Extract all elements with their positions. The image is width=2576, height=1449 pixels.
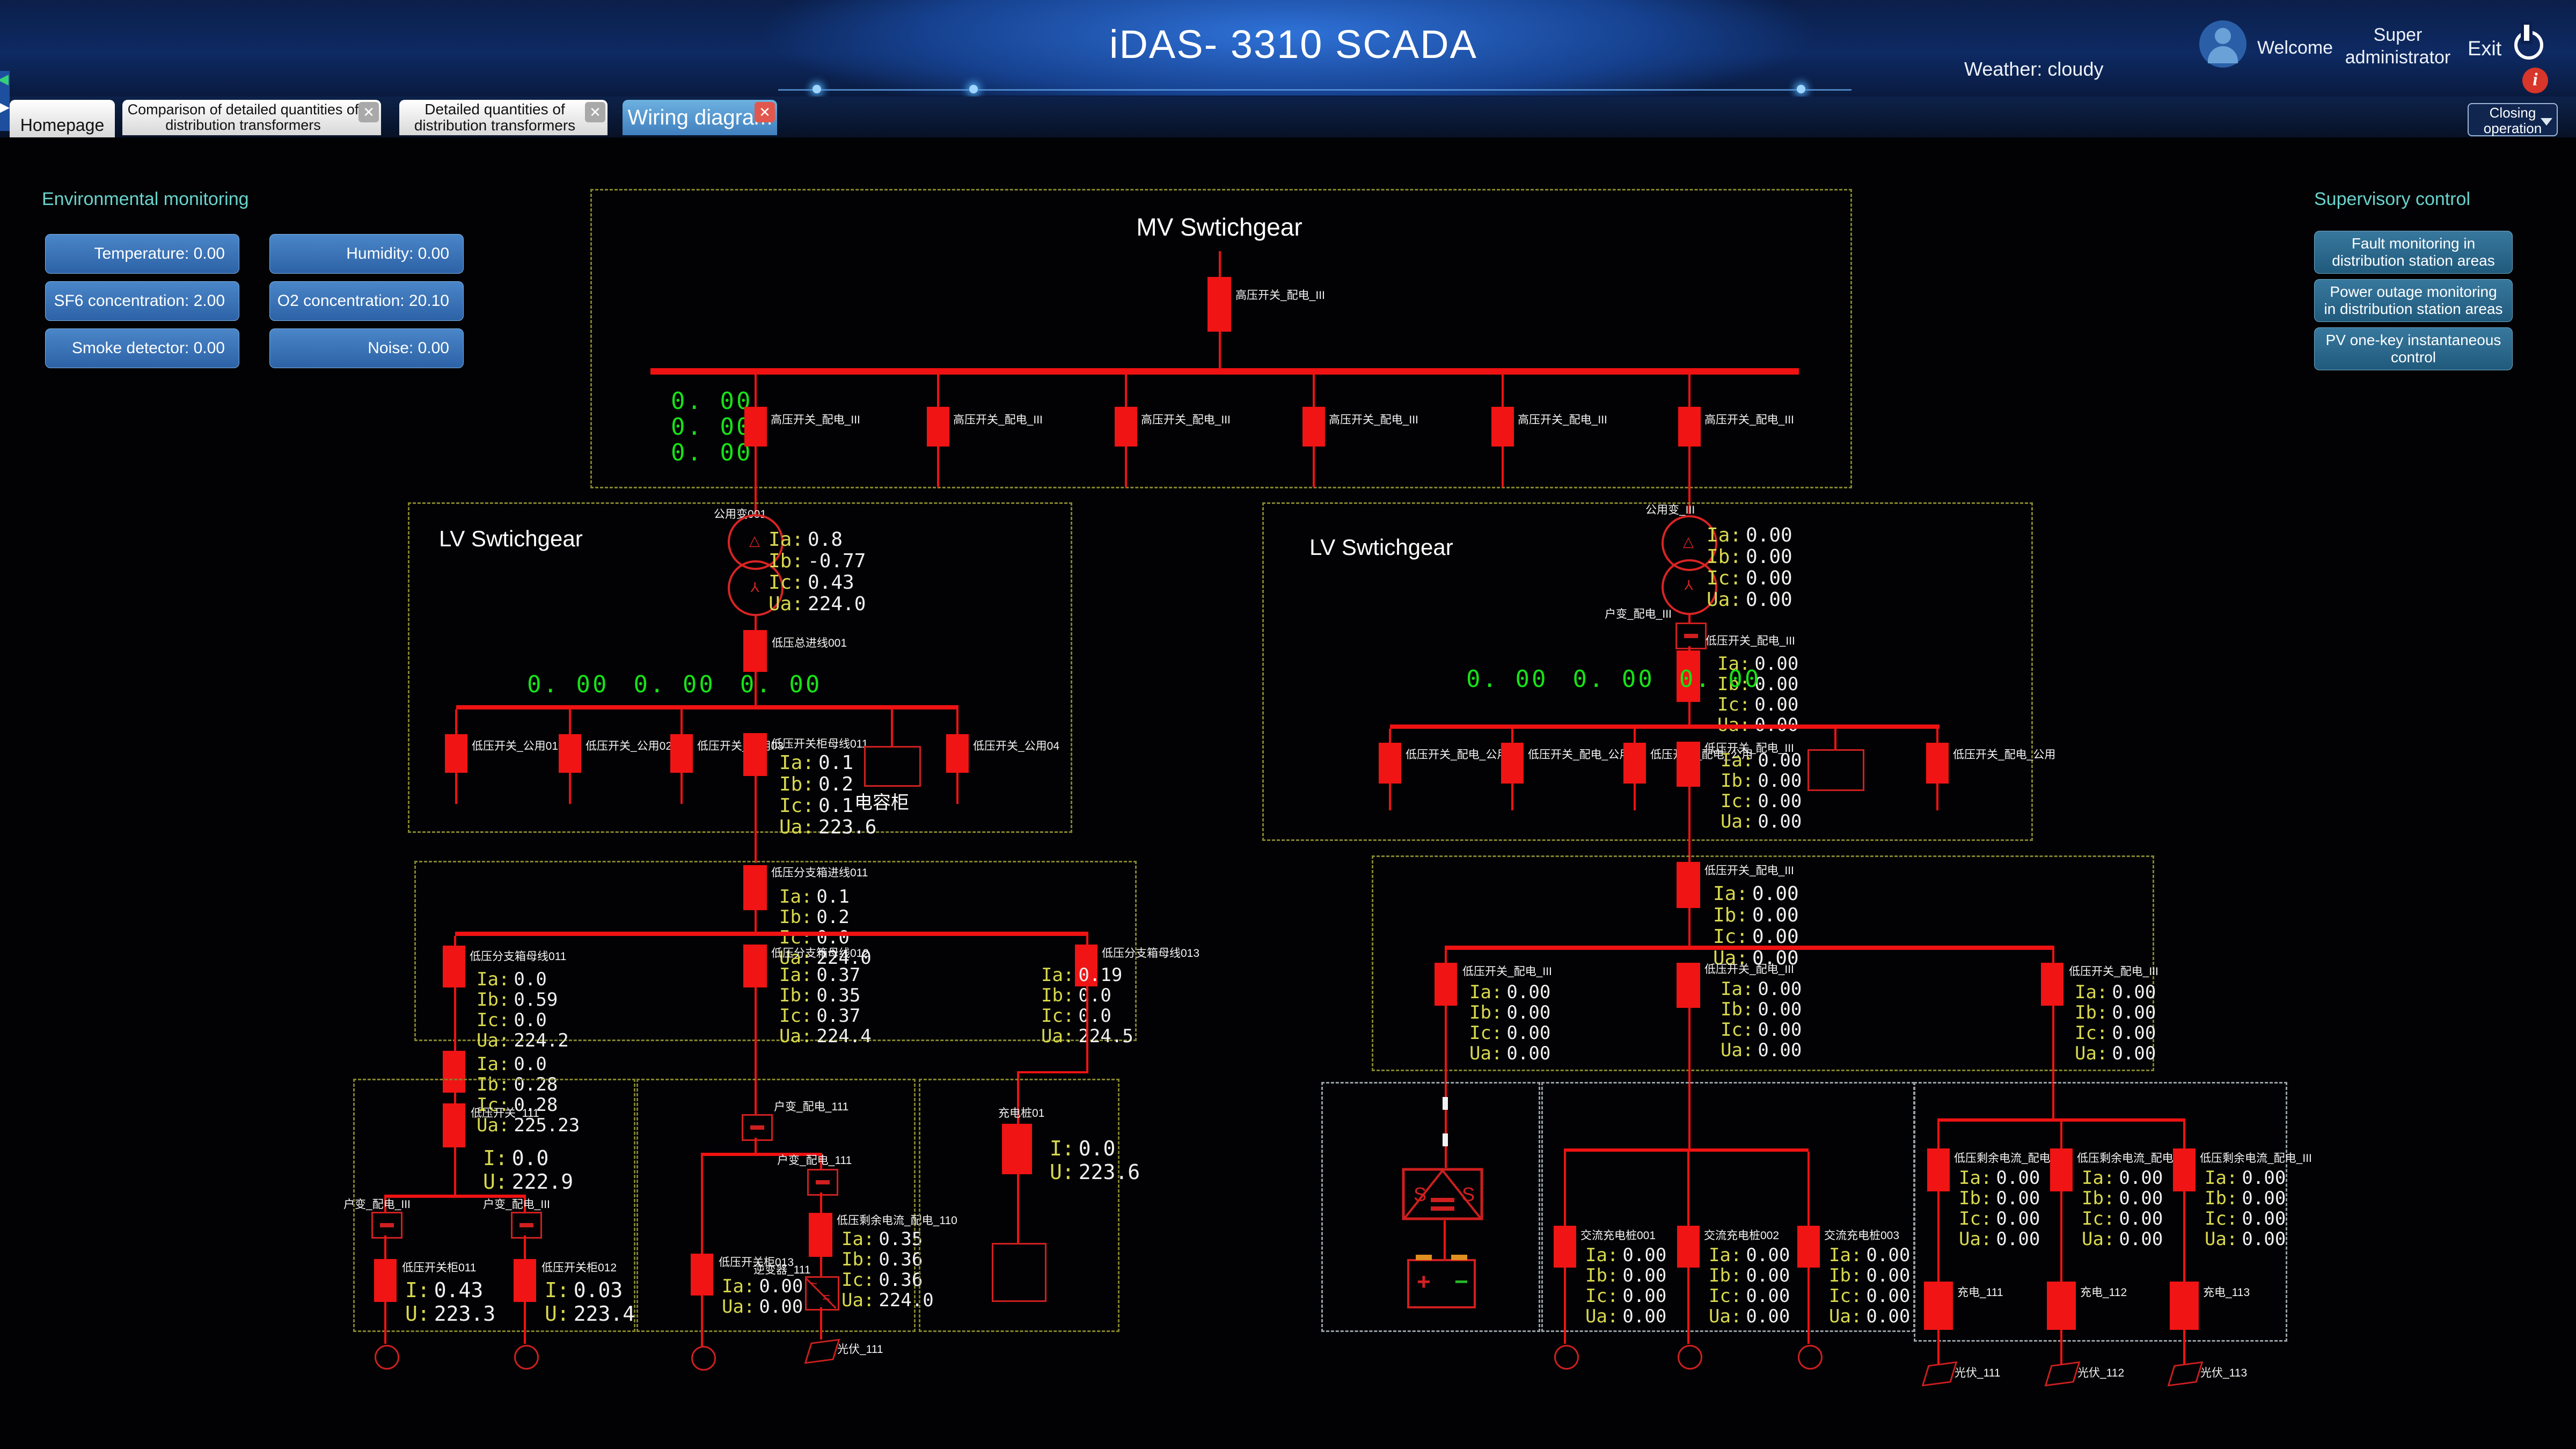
device-label: 低压开关_配电_III bbox=[1706, 635, 1795, 647]
chevron-left-icon[interactable]: ◀ bbox=[0, 71, 9, 87]
wire bbox=[1937, 1122, 1940, 1150]
device-label: 低压开关_公用02 bbox=[586, 741, 672, 752]
lv-main-breaker[interactable] bbox=[743, 630, 767, 672]
busbar bbox=[384, 1195, 526, 1198]
tab-bar bbox=[0, 97, 2576, 137]
device-label: 低压开关_公用01 bbox=[472, 741, 558, 752]
device-label: 充电_111 bbox=[1957, 1287, 2003, 1299]
mv-feeder-breaker[interactable] bbox=[927, 407, 949, 447]
fault-monitoring-button[interactable]: Fault monitoring in distribution station… bbox=[2314, 231, 2513, 274]
wire bbox=[1687, 1152, 1689, 1227]
wire bbox=[937, 375, 939, 408]
device-label: 低压开关柜012 bbox=[541, 1262, 617, 1274]
device-label: 低压开关柜母线011 bbox=[771, 738, 868, 750]
device-label: 交流充电桩002 bbox=[1704, 1230, 1779, 1242]
lv-right-title: LV Swtichgear bbox=[1309, 535, 1453, 560]
close-icon[interactable]: ✕ bbox=[358, 102, 379, 122]
device-label: 低压剩余电流_配电_III bbox=[2200, 1153, 2312, 1165]
tab-detailed-quantities[interactable]: Detailed quantities of distribution tran… bbox=[399, 100, 608, 135]
device-label: 低压分支箱进线011 bbox=[771, 867, 868, 879]
branch-breaker[interactable] bbox=[443, 1103, 465, 1147]
readings: Ia:0.00Ib:0.00Ic:0.00Ua:0.00 bbox=[1713, 883, 1799, 969]
wire bbox=[755, 776, 757, 863]
wire bbox=[1125, 375, 1127, 408]
readings: Ia:0.00Ib:0.00Ic:0.00Ua:0.00 bbox=[1721, 750, 1802, 832]
weather-text: Weather: cloudy bbox=[1964, 58, 2103, 80]
svg-text:S: S bbox=[1414, 1183, 1426, 1205]
wire bbox=[1936, 729, 1938, 744]
branch-breaker[interactable] bbox=[743, 865, 767, 910]
pv-breaker[interactable] bbox=[2173, 1148, 2196, 1191]
pv-panel-icon bbox=[2168, 1362, 2204, 1387]
pv-breaker[interactable] bbox=[2050, 1148, 2073, 1191]
mv-green-values: 0. 00 0. 00 0. 00 bbox=[671, 389, 752, 466]
wire bbox=[1807, 1268, 1810, 1344]
charger-breaker[interactable] bbox=[1677, 1226, 1700, 1268]
device-label: 低压开关_111 bbox=[471, 1108, 539, 1119]
mv-title: MV Swtichgear bbox=[1107, 213, 1332, 241]
svg-text:S: S bbox=[1462, 1183, 1475, 1205]
readings: Ia:0.00Ib:0.00Ic:0.00Ua:0.00 bbox=[1585, 1245, 1666, 1327]
readings: Ia:0.00Ib:0.00Ic:0.00Ua:0.00 bbox=[1829, 1245, 1910, 1327]
green-value: 0. 00 bbox=[740, 672, 822, 698]
inverter-glyph: ~ bbox=[809, 1276, 817, 1290]
wire bbox=[891, 709, 893, 747]
wire bbox=[1313, 375, 1315, 408]
device-label: 低压分支箱母线012 bbox=[771, 948, 869, 960]
wire bbox=[1688, 702, 1690, 726]
avatar-body-icon bbox=[2208, 46, 2238, 63]
wire bbox=[755, 1138, 757, 1153]
wire bbox=[2052, 950, 2054, 964]
wire bbox=[569, 709, 571, 735]
load-circle bbox=[514, 1345, 539, 1370]
device-label: 低压开关_配电_公用 bbox=[1953, 749, 2055, 761]
device-label: 交流充电桩003 bbox=[1824, 1230, 1899, 1242]
lv-feeder-breaker[interactable] bbox=[1623, 743, 1646, 784]
device-label: 高压开关_配电_III bbox=[1141, 414, 1231, 426]
readings: Ia:0.8Ib:-0.77Ic:0.43Ua:224.0 bbox=[769, 529, 866, 615]
wire bbox=[384, 1235, 386, 1260]
sf6-button[interactable]: SF6 concentration: 2.00 bbox=[45, 281, 239, 321]
wire bbox=[1502, 375, 1504, 408]
wire bbox=[1125, 445, 1127, 487]
closing-operation-button[interactable]: Closing operation bbox=[2468, 103, 2558, 136]
readings: Ia:0.00Ua:0.00 bbox=[722, 1276, 803, 1317]
charger-breaker[interactable] bbox=[1002, 1124, 1032, 1174]
sidebar-collapse-strip[interactable]: ◀ ▶ bbox=[0, 71, 10, 131]
tab-label: Homepage bbox=[20, 115, 105, 135]
wire bbox=[454, 936, 456, 947]
outage-monitoring-button[interactable]: Power outage monitoring in distribution … bbox=[2314, 279, 2513, 322]
wire bbox=[680, 709, 683, 735]
wire bbox=[755, 910, 757, 933]
charger-breaker[interactable] bbox=[1554, 1226, 1576, 1268]
device-label: 光伏_113 bbox=[2200, 1367, 2247, 1379]
pv-onekey-button[interactable]: PV one-key instantaneous control bbox=[2314, 327, 2513, 370]
header: iDAS- 3310 SCADA Weather: cloudy Welcome… bbox=[0, 0, 2576, 97]
readings: Ia:0.00Ib:0.00Ic:0.00Ua:0.00 bbox=[2205, 1168, 2286, 1249]
green-value: 0. 00 bbox=[671, 440, 752, 466]
green-value: 0. 00 bbox=[671, 414, 752, 440]
chevron-down-icon bbox=[2541, 118, 2552, 126]
mid-left-busbar bbox=[455, 932, 1088, 936]
branch-breaker[interactable] bbox=[1677, 963, 1700, 1008]
device-label: 户变_配电_III bbox=[483, 1199, 550, 1211]
device-label: 低压开关_配电_公用 bbox=[1406, 749, 1508, 761]
branch-breaker[interactable] bbox=[2041, 963, 2063, 1006]
mv-feeder-breaker[interactable] bbox=[744, 407, 767, 447]
charger-breaker[interactable] bbox=[1797, 1226, 1820, 1268]
load-circle bbox=[1554, 1345, 1579, 1370]
device-label: 光伏_112 bbox=[2077, 1367, 2124, 1379]
disconnect-switch-icon[interactable] bbox=[371, 1212, 402, 1239]
device-label: 充电_113 bbox=[2203, 1287, 2250, 1299]
wire bbox=[701, 1296, 703, 1347]
line-tick bbox=[1443, 1133, 1448, 1146]
pv-charger-breaker[interactable] bbox=[1924, 1282, 1953, 1330]
wire bbox=[524, 1235, 526, 1260]
mv-feeder-breaker[interactable] bbox=[1678, 407, 1701, 447]
device-label: 高压开关_配电_III bbox=[1329, 414, 1418, 426]
lv-feeder-breaker[interactable] bbox=[670, 734, 693, 773]
wire bbox=[1634, 784, 1636, 810]
wire bbox=[1936, 784, 1938, 810]
device-label: 充电桩01 bbox=[998, 1108, 1044, 1119]
disconnect-switch-icon[interactable] bbox=[807, 1169, 838, 1196]
glow-dot bbox=[1797, 85, 1805, 93]
device-label: 户变_配电_111 bbox=[777, 1155, 852, 1167]
device-label: 低压开关_配电_III bbox=[1704, 865, 1794, 877]
scada-screen: iDAS- 3310 SCADA Weather: cloudy Welcome… bbox=[0, 0, 2576, 1449]
branch-breaker[interactable] bbox=[743, 945, 767, 987]
lv-right-busbar bbox=[1390, 724, 1940, 729]
wire bbox=[937, 445, 939, 487]
mid-right-busbar bbox=[1445, 946, 2054, 950]
device-label: 高压开关_配电_III bbox=[1518, 414, 1607, 426]
wire bbox=[1511, 729, 1513, 744]
readings: Ia:0.00Ib:0.00Ic:0.00Ua:0.00 bbox=[1709, 1245, 1790, 1327]
wire bbox=[1444, 1220, 1446, 1259]
busbar bbox=[1564, 1148, 1809, 1152]
disconnect-switch-icon[interactable] bbox=[511, 1212, 542, 1239]
device-label: 低压分支箱母线013 bbox=[1102, 948, 1199, 960]
wire bbox=[454, 1147, 456, 1196]
lv-feeder-breaker[interactable] bbox=[445, 734, 467, 773]
battery-icon: + − bbox=[1407, 1259, 1476, 1308]
pv-charger-breaker[interactable] bbox=[2170, 1282, 2199, 1330]
mv-feeder-breaker[interactable] bbox=[1115, 407, 1137, 447]
device-label: 公用变_III bbox=[1645, 504, 1695, 516]
wire bbox=[2060, 1191, 2062, 1283]
wire bbox=[1688, 375, 1690, 408]
smoke-button[interactable]: Smoke detector: 0.00 bbox=[45, 328, 239, 368]
avatar-head-icon bbox=[2215, 28, 2231, 44]
mv-incoming-breaker[interactable] bbox=[1207, 277, 1231, 332]
page-title: iDAS- 3310 SCADA bbox=[966, 21, 1621, 67]
converter-icon: S S bbox=[1402, 1168, 1483, 1220]
lv-right-green-values: 0. 000. 000. 00 bbox=[1466, 667, 1761, 692]
wire bbox=[956, 709, 958, 735]
device-label: 光伏_111 bbox=[1955, 1367, 2001, 1379]
wire bbox=[1834, 729, 1836, 750]
wire bbox=[1688, 787, 1690, 863]
wire bbox=[1018, 1071, 1088, 1073]
capacitor-label: 电容柜 bbox=[854, 788, 909, 814]
tab-homepage[interactable]: Homepage bbox=[10, 100, 115, 137]
load-breaker[interactable] bbox=[809, 1213, 832, 1257]
device-label: 交流充电桩001 bbox=[1580, 1230, 1656, 1242]
wire bbox=[2060, 1330, 2062, 1364]
wire bbox=[1086, 986, 1088, 1073]
power-icon[interactable] bbox=[2509, 24, 2544, 58]
wire bbox=[2183, 1122, 2185, 1150]
noise-button[interactable]: Noise: 0.00 bbox=[269, 328, 464, 368]
wire bbox=[1687, 1268, 1689, 1344]
wire bbox=[1807, 1152, 1810, 1227]
disconnect-switch-icon[interactable] bbox=[1675, 623, 1707, 649]
readings: Ia:0.00Ib:0.00Ic:0.00Ua:0.00 bbox=[1959, 1168, 2040, 1249]
wire bbox=[1511, 784, 1513, 810]
branch-breaker[interactable] bbox=[1435, 963, 1457, 1006]
capacitor-box-icon bbox=[864, 746, 921, 787]
device-label: 户变_配电_III bbox=[1605, 609, 1672, 620]
chevron-right-icon[interactable]: ▶ bbox=[0, 99, 10, 115]
wire bbox=[1389, 729, 1391, 744]
wire bbox=[569, 773, 571, 804]
line-tick bbox=[1443, 1097, 1448, 1110]
user-name-line2: administrator bbox=[2344, 46, 2451, 69]
disconnect-switch-icon[interactable] bbox=[742, 1114, 773, 1141]
mv-feeder-breaker[interactable] bbox=[1302, 407, 1325, 447]
wire bbox=[454, 987, 456, 1052]
user-name-line1: Super bbox=[2344, 24, 2451, 46]
header-divider bbox=[778, 89, 1851, 91]
readings: Ia:0.00Ib:0.00Ic:0.00Ua:0.00 bbox=[1707, 525, 1792, 611]
tab-label: Comparison of detailed quantities of dis… bbox=[127, 102, 360, 133]
device-label: 逆变器_111 bbox=[753, 1264, 811, 1276]
lv-feeder-breaker[interactable] bbox=[1926, 743, 1949, 784]
branch-breaker[interactable] bbox=[443, 946, 465, 987]
close-icon[interactable]: ✕ bbox=[585, 102, 605, 122]
humidity-button[interactable]: Humidity: 0.00 bbox=[269, 234, 464, 274]
power-bar bbox=[2524, 25, 2529, 41]
glow-dot bbox=[813, 85, 821, 93]
readings: I:0.0U:223.6 bbox=[1050, 1137, 1140, 1184]
wire bbox=[1688, 908, 1690, 947]
wire bbox=[1937, 1330, 1940, 1364]
pv-panel-icon bbox=[804, 1339, 840, 1364]
device-label: 高压开关_配电_III bbox=[953, 414, 1043, 426]
wire bbox=[1634, 729, 1636, 744]
device-label: 高压开关_配电_III bbox=[1235, 290, 1325, 302]
green-value: 0. 00 bbox=[671, 389, 752, 414]
capacitor-box-icon bbox=[1807, 749, 1864, 791]
wire bbox=[1017, 1174, 1019, 1243]
lv-left-busbar bbox=[456, 705, 958, 709]
wire bbox=[755, 616, 757, 631]
load-circle bbox=[375, 1345, 399, 1370]
pv-panel-icon bbox=[2045, 1362, 2081, 1387]
glow-dot bbox=[969, 85, 978, 93]
branch-breaker[interactable] bbox=[1677, 862, 1700, 908]
green-value: 0. 00 bbox=[1572, 667, 1654, 692]
load-circle bbox=[1678, 1345, 1702, 1370]
device-label: 低压开关_配电_公用 bbox=[1528, 749, 1630, 761]
exit-button[interactable]: Exit bbox=[2468, 38, 2501, 61]
device-label: 低压开关_配电_III bbox=[2069, 966, 2158, 978]
green-value: 0. 00 bbox=[527, 672, 609, 698]
readings: Ia:0.00Ib:0.00Ic:0.00Ua:0.00 bbox=[1721, 979, 1802, 1060]
device-label: 户变_配电_111 bbox=[774, 1101, 848, 1113]
pv-panel-icon bbox=[1922, 1362, 1958, 1387]
wire bbox=[2183, 1191, 2185, 1283]
wire bbox=[956, 773, 958, 804]
load-box-icon bbox=[992, 1243, 1046, 1302]
wire bbox=[820, 1192, 822, 1213]
device-label: 低压开关_公用03 bbox=[697, 741, 784, 752]
info-icon[interactable]: i bbox=[2522, 68, 2548, 93]
temperature-button[interactable]: Temperature: 0.00 bbox=[45, 234, 239, 274]
wire bbox=[755, 375, 757, 408]
device-label: 低压分支箱母线011 bbox=[470, 951, 566, 963]
wire bbox=[701, 1156, 703, 1255]
load-circle bbox=[691, 1346, 716, 1371]
wire bbox=[820, 1257, 822, 1276]
lv-feeder-breaker[interactable] bbox=[1501, 743, 1524, 784]
lv-feeder-breaker[interactable] bbox=[559, 734, 581, 773]
green-value: 0. 00 bbox=[633, 672, 715, 698]
lv-center-breaker[interactable] bbox=[1677, 742, 1700, 787]
tab-comparison[interactable]: Comparison of detailed quantities of dis… bbox=[122, 100, 381, 135]
wire bbox=[455, 773, 457, 804]
wire bbox=[384, 1302, 386, 1344]
device-label: 充电_112 bbox=[2080, 1287, 2127, 1299]
close-icon[interactable]: ✕ bbox=[755, 102, 775, 122]
user-name: Super administrator bbox=[2344, 24, 2451, 69]
wire bbox=[455, 709, 457, 735]
device-label: 低压开关柜011 bbox=[402, 1262, 476, 1274]
tab-label: Wiring diagram bbox=[628, 106, 772, 130]
device-label: 低压剩余电流_配电_III bbox=[1954, 1153, 2066, 1165]
mv-feeder-breaker[interactable] bbox=[1491, 407, 1514, 447]
wire bbox=[1389, 784, 1391, 810]
closing-operation-label: Closing operation bbox=[2484, 105, 2542, 136]
device-label: 高压开关_配电_III bbox=[1704, 414, 1794, 426]
readings: Ia:0.37Ib:0.35Ic:0.37Ua:224.4 bbox=[779, 965, 872, 1046]
wire bbox=[1313, 445, 1315, 487]
wire bbox=[680, 773, 683, 804]
wire bbox=[1502, 445, 1504, 487]
tab-wiring-diagram[interactable]: Wiring diagram ✕ bbox=[623, 100, 777, 135]
load-breaker[interactable] bbox=[691, 1254, 713, 1296]
load-circle bbox=[1798, 1345, 1823, 1370]
wire bbox=[1445, 950, 1447, 964]
readings: Ia:0.00Ib:0.00Ic:0.00Ua:0.00 bbox=[2082, 1168, 2163, 1249]
device-label: 低压总进线001 bbox=[772, 638, 847, 649]
wire bbox=[2183, 1330, 2185, 1364]
mv-busbar bbox=[650, 368, 1799, 375]
lv-feeder-breaker[interactable] bbox=[946, 734, 969, 773]
avatar[interactable] bbox=[2199, 20, 2246, 68]
load-breaker[interactable] bbox=[374, 1259, 397, 1302]
device-label: 光伏_111 bbox=[837, 1344, 883, 1356]
device-label: 低压剩余电流_配电_III bbox=[2077, 1153, 2189, 1165]
o2-button[interactable]: O2 concentration: 20.10 bbox=[269, 281, 464, 321]
readings: Ia:0.00Ib:0.00Ic:0.00Ua:0.00 bbox=[2075, 982, 2156, 1064]
device-label: 高压开关_配电_III bbox=[771, 414, 860, 426]
readings: I:0.0U:222.9 bbox=[483, 1146, 573, 1194]
pv-breaker[interactable] bbox=[1927, 1148, 1950, 1191]
tab-label: Detailed quantities of distribution tran… bbox=[404, 101, 586, 134]
wire bbox=[1937, 1191, 1940, 1283]
lv-left-green-values: 0. 000. 000. 00 bbox=[527, 672, 822, 698]
supervisory-panel-title: Supervisory control bbox=[2314, 189, 2470, 210]
env-panel-title: Environmental monitoring bbox=[42, 189, 249, 210]
wire bbox=[524, 1302, 526, 1344]
wire bbox=[1564, 1268, 1566, 1344]
wire bbox=[2060, 1122, 2062, 1150]
lv-feeder-breaker[interactable] bbox=[1379, 743, 1401, 784]
device-label: 低压开关_配电_III bbox=[1704, 964, 1794, 976]
readings: Ia:0.00Ib:0.00Ic:0.00Ua:0.00 bbox=[1469, 982, 1550, 1064]
load-breaker[interactable] bbox=[514, 1259, 536, 1302]
wire bbox=[1564, 1152, 1566, 1227]
device-label: 户变_配电_III bbox=[343, 1199, 411, 1211]
green-value: 0. 00 bbox=[1466, 667, 1548, 692]
welcome-text: Welcome bbox=[2257, 38, 2333, 58]
wire bbox=[820, 1307, 822, 1340]
readings: I:0.03U:223.4 bbox=[545, 1278, 635, 1326]
device-label: 低压开关_配电_III bbox=[1462, 966, 1552, 978]
lv-center-breaker[interactable] bbox=[743, 733, 767, 776]
pv-charger-breaker[interactable] bbox=[2047, 1282, 2076, 1330]
inverter-glyph: = bbox=[822, 1290, 830, 1304]
lv-left-title: LV Swtichgear bbox=[439, 526, 583, 552]
readings: I:0.43U:223.3 bbox=[405, 1278, 495, 1326]
green-value: 0. 00 bbox=[1679, 667, 1761, 692]
device-label: 低压开关_公用04 bbox=[973, 741, 1059, 752]
readings: Ia:0.0Ib:0.59Ic:0.0Ua:224.2 bbox=[477, 969, 569, 1051]
